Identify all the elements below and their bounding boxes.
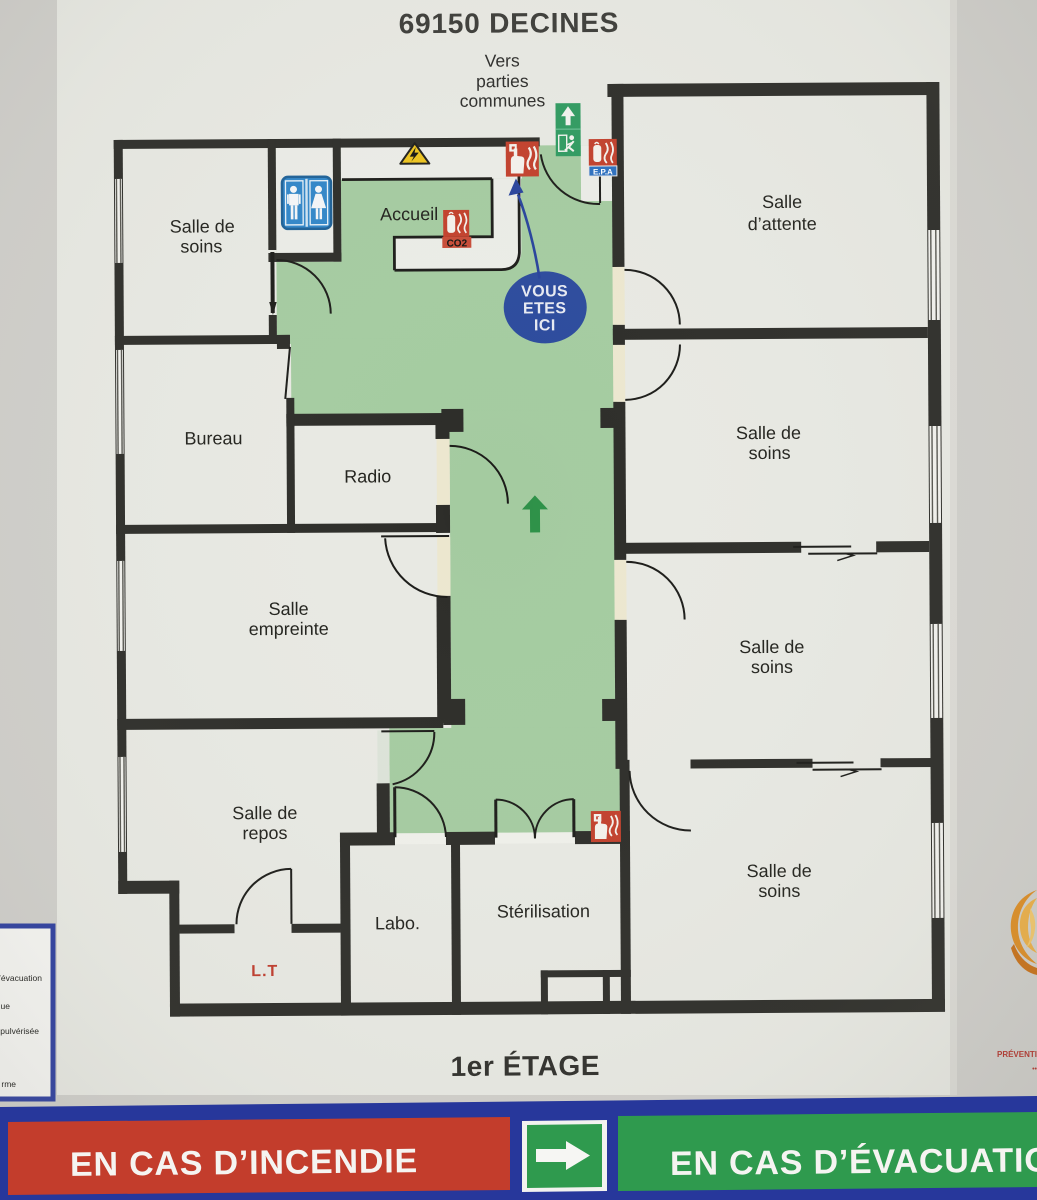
svg-text:EN CAS D’INCENDIE: EN CAS D’INCENDIE	[70, 1142, 418, 1184]
svg-text:EN CAS D’ÉVACUATION: EN CAS D’ÉVACUATION	[670, 1141, 1037, 1183]
